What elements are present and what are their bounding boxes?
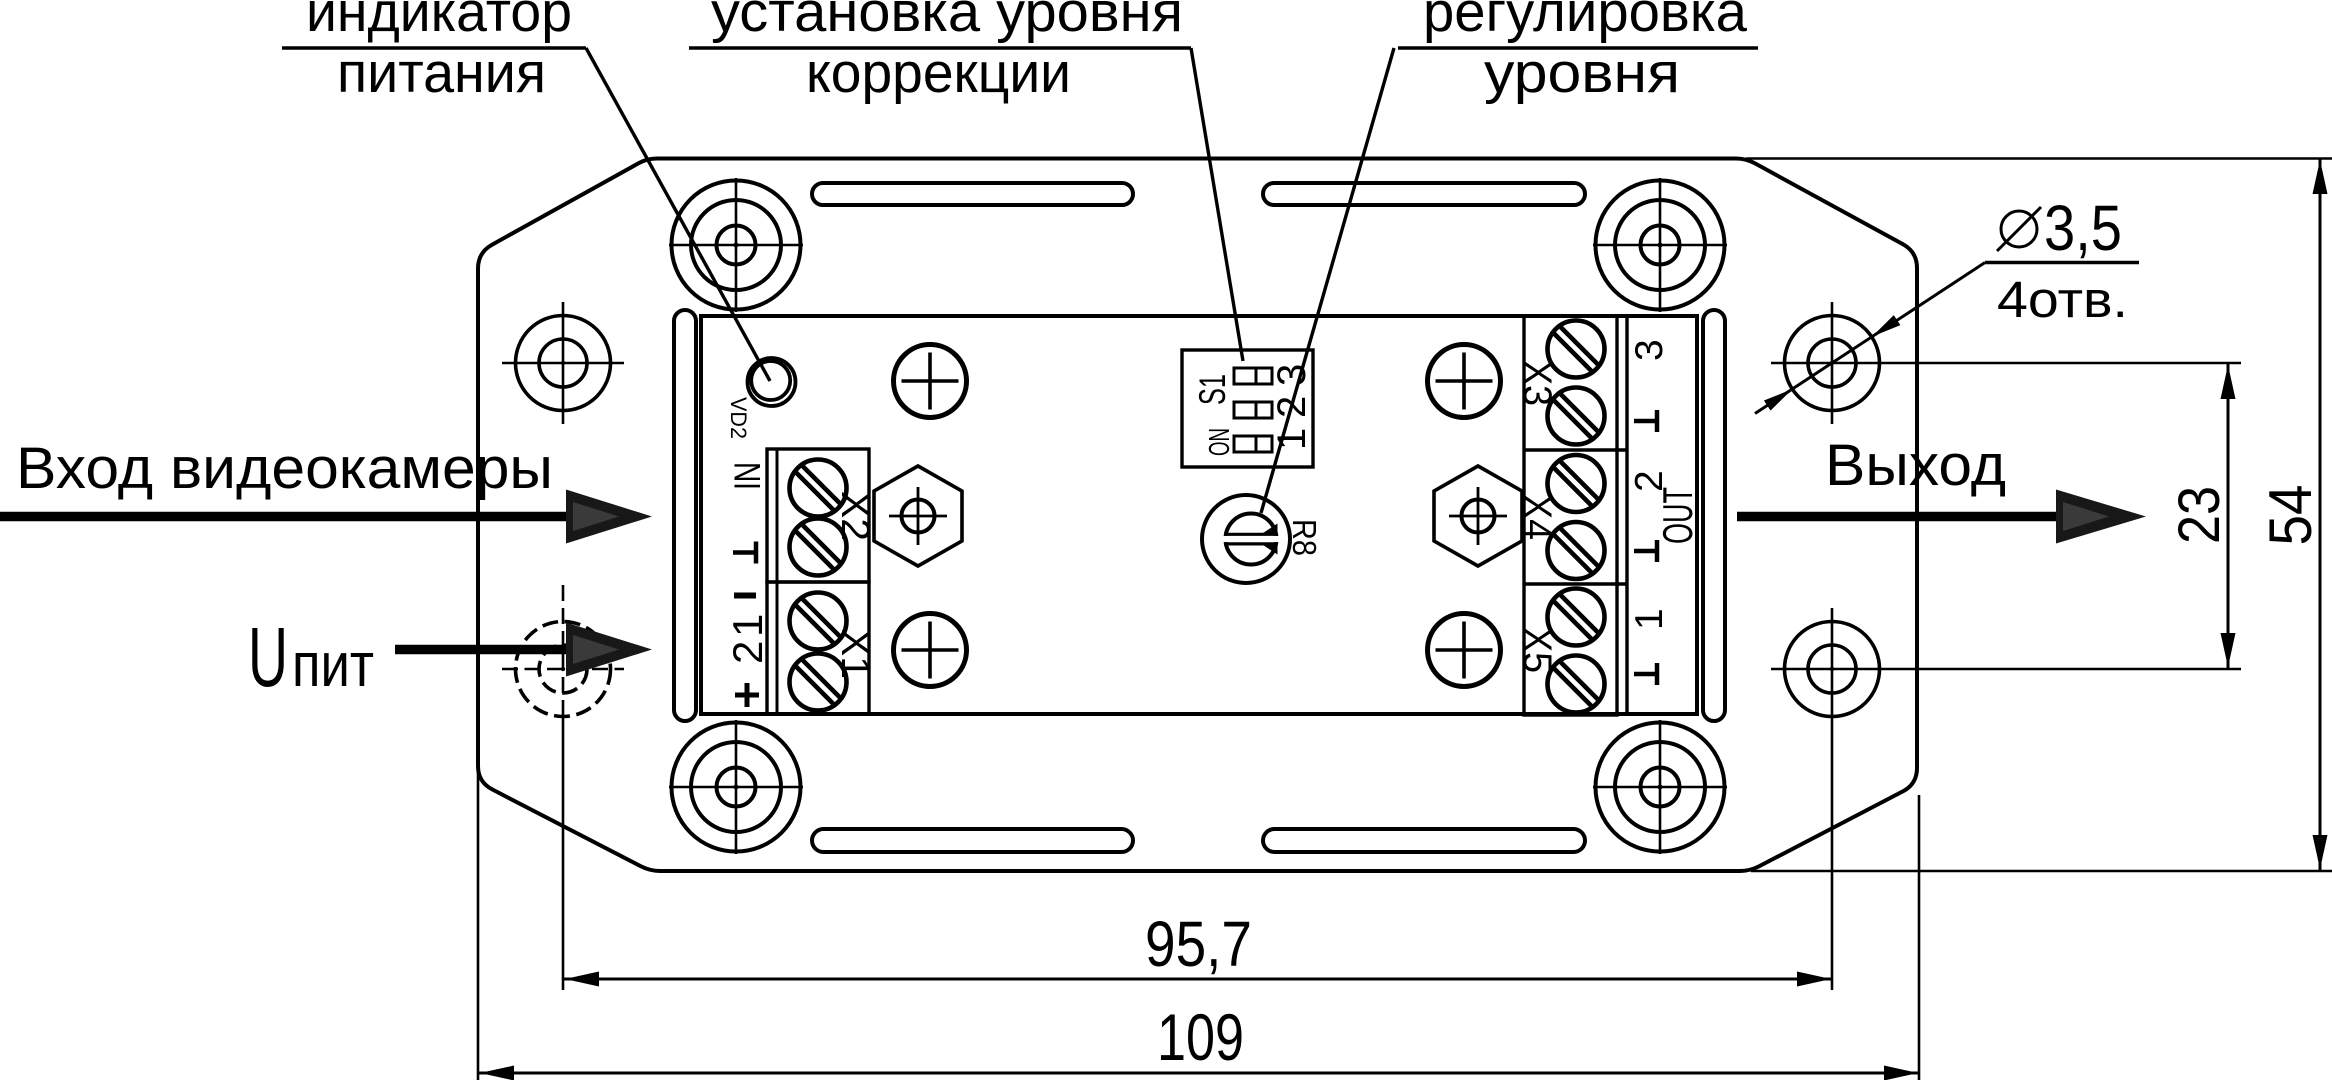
svg-text:3,5: 3,5: [2044, 192, 2122, 264]
svg-text:109: 109: [1157, 1000, 1244, 1074]
svg-text:23: 23: [2167, 486, 2232, 544]
svg-text:R8: R8: [1286, 519, 1323, 556]
svg-text:уровня: уровня: [1484, 41, 1680, 105]
svg-text:3: 3: [1270, 364, 1314, 386]
svg-text:индикатор: индикатор: [306, 0, 572, 44]
svg-text:OUT: OUT: [1654, 487, 1701, 544]
svg-text:IN: IN: [727, 462, 768, 490]
svg-text:пит: пит: [292, 631, 374, 700]
svg-text:Вход видеокамеры: Вход видеокамеры: [16, 436, 553, 501]
svg-text:U: U: [248, 610, 288, 704]
svg-text:коррекции: коррекции: [806, 41, 1071, 105]
svg-text:установка уровня: установка уровня: [711, 0, 1183, 44]
svg-text:54: 54: [2257, 485, 2324, 546]
svg-text:VD2: VD2: [726, 397, 751, 439]
svg-text:регулировка: регулировка: [1423, 0, 1747, 44]
svg-text:2: 2: [724, 641, 771, 664]
svg-text:X5: X5: [1515, 627, 1559, 673]
svg-text:95,7: 95,7: [1145, 908, 1252, 980]
svg-text:X3: X3: [1515, 360, 1559, 406]
svg-text:Выход: Выход: [1825, 433, 2006, 498]
svg-text:1: 1: [724, 614, 771, 637]
svg-text:X2: X2: [833, 491, 877, 541]
svg-text:X1: X1: [833, 629, 877, 679]
svg-text:X4: X4: [1515, 494, 1559, 540]
svg-text:1: 1: [1628, 608, 1671, 630]
svg-text:ON: ON: [1204, 428, 1236, 456]
svg-text:3: 3: [1628, 339, 1671, 361]
svg-text:1: 1: [1270, 428, 1314, 450]
svg-text:S1: S1: [1192, 374, 1233, 405]
svg-text:4отв.: 4отв.: [1997, 271, 2128, 328]
svg-text:питания: питания: [337, 41, 546, 105]
